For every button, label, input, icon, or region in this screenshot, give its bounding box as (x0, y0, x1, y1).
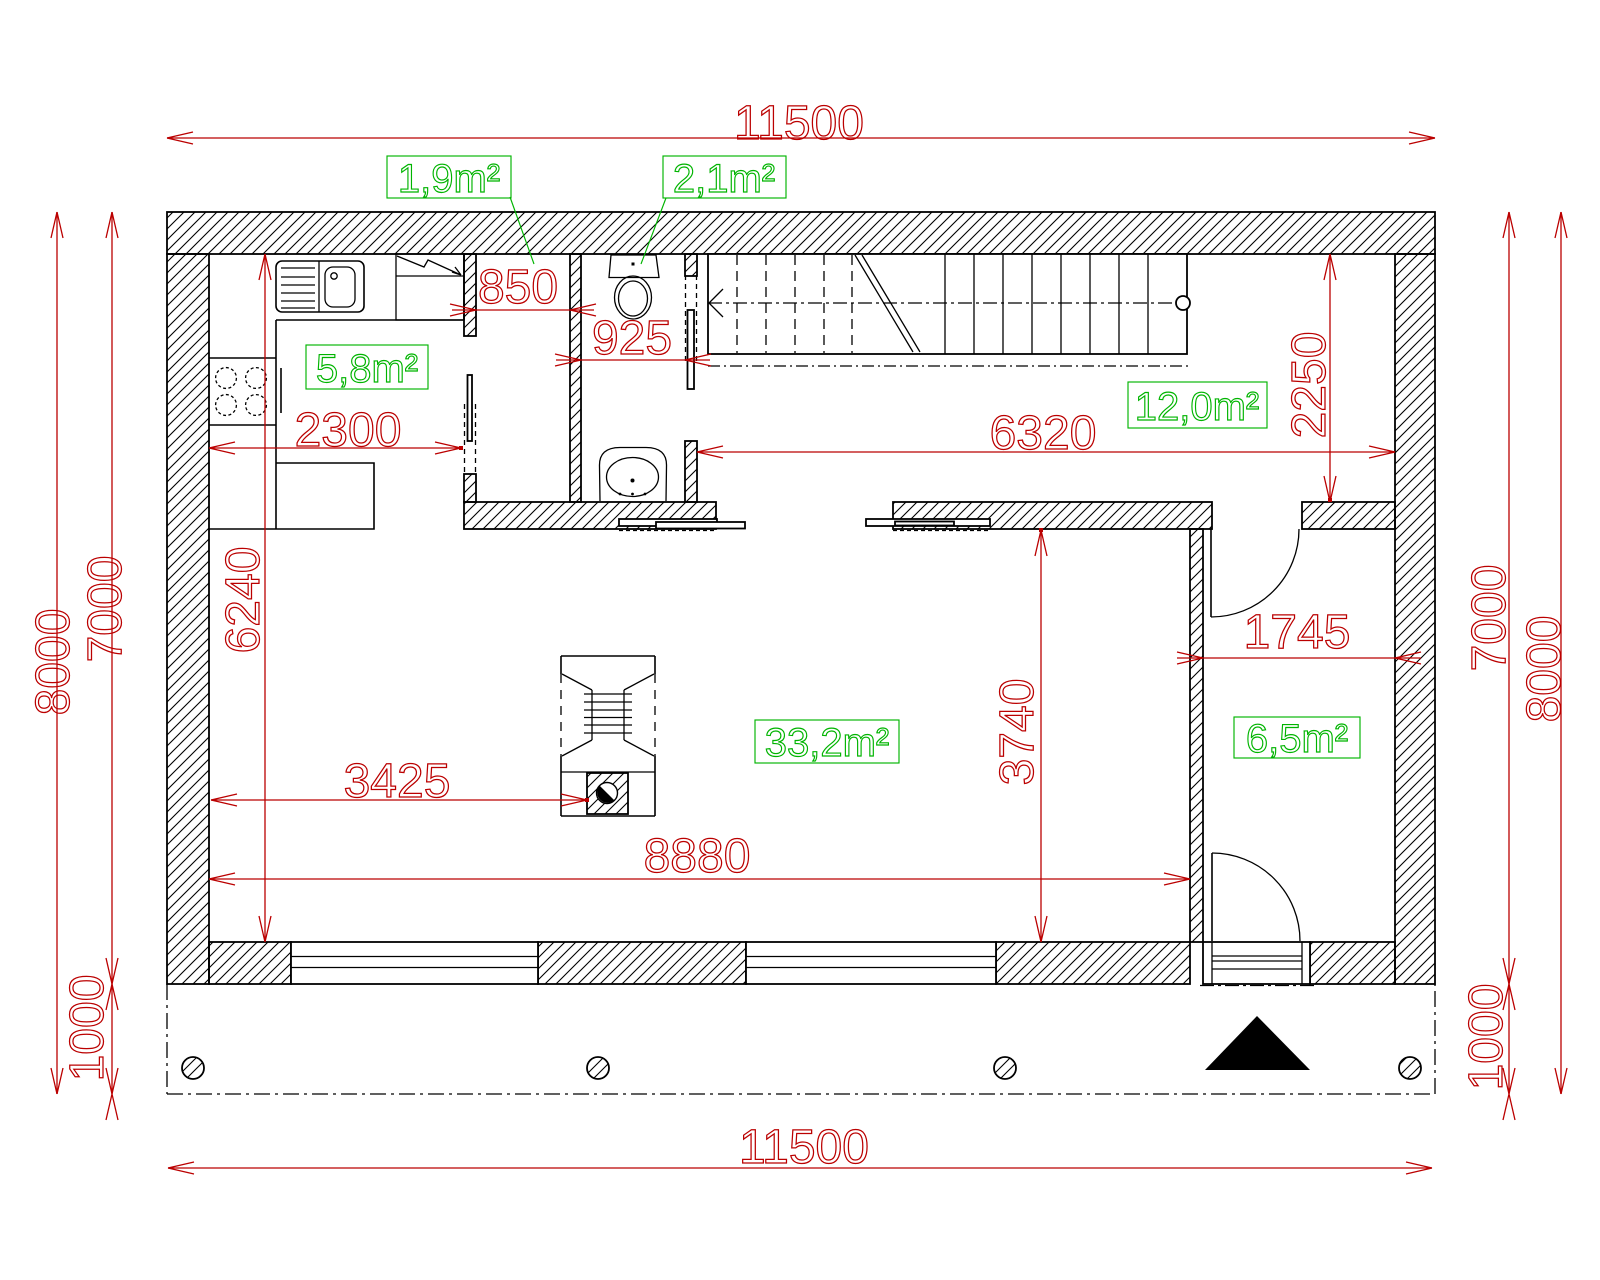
svg-text:925: 925 (592, 312, 672, 365)
svg-text:1745: 1745 (1244, 606, 1351, 659)
svg-text:2300: 2300 (295, 404, 402, 457)
svg-text:850: 850 (478, 261, 558, 314)
svg-text:2,1m²: 2,1m² (673, 157, 775, 201)
svg-text:1000: 1000 (61, 975, 114, 1082)
svg-text:6,5m²: 6,5m² (1246, 717, 1348, 761)
svg-text:33,2m²: 33,2m² (765, 721, 890, 765)
svg-text:8880: 8880 (644, 830, 751, 883)
svg-text:12,0m²: 12,0m² (1135, 385, 1260, 429)
svg-text:1,9m²: 1,9m² (398, 157, 500, 201)
svg-text:7000: 7000 (1463, 565, 1516, 672)
svg-text:11500: 11500 (739, 1121, 869, 1174)
svg-text:3425: 3425 (344, 755, 451, 808)
svg-text:8000: 8000 (1518, 616, 1571, 723)
svg-text:6320: 6320 (990, 407, 1097, 460)
svg-text:6240: 6240 (217, 547, 270, 654)
svg-text:1000: 1000 (1460, 984, 1513, 1091)
svg-text:7000: 7000 (79, 556, 132, 663)
svg-text:2250: 2250 (1283, 332, 1336, 439)
svg-text:3740: 3740 (991, 679, 1044, 786)
svg-text:5,8m²: 5,8m² (316, 347, 418, 391)
svg-text:8000: 8000 (27, 609, 80, 716)
svg-text:11500: 11500 (734, 97, 864, 150)
